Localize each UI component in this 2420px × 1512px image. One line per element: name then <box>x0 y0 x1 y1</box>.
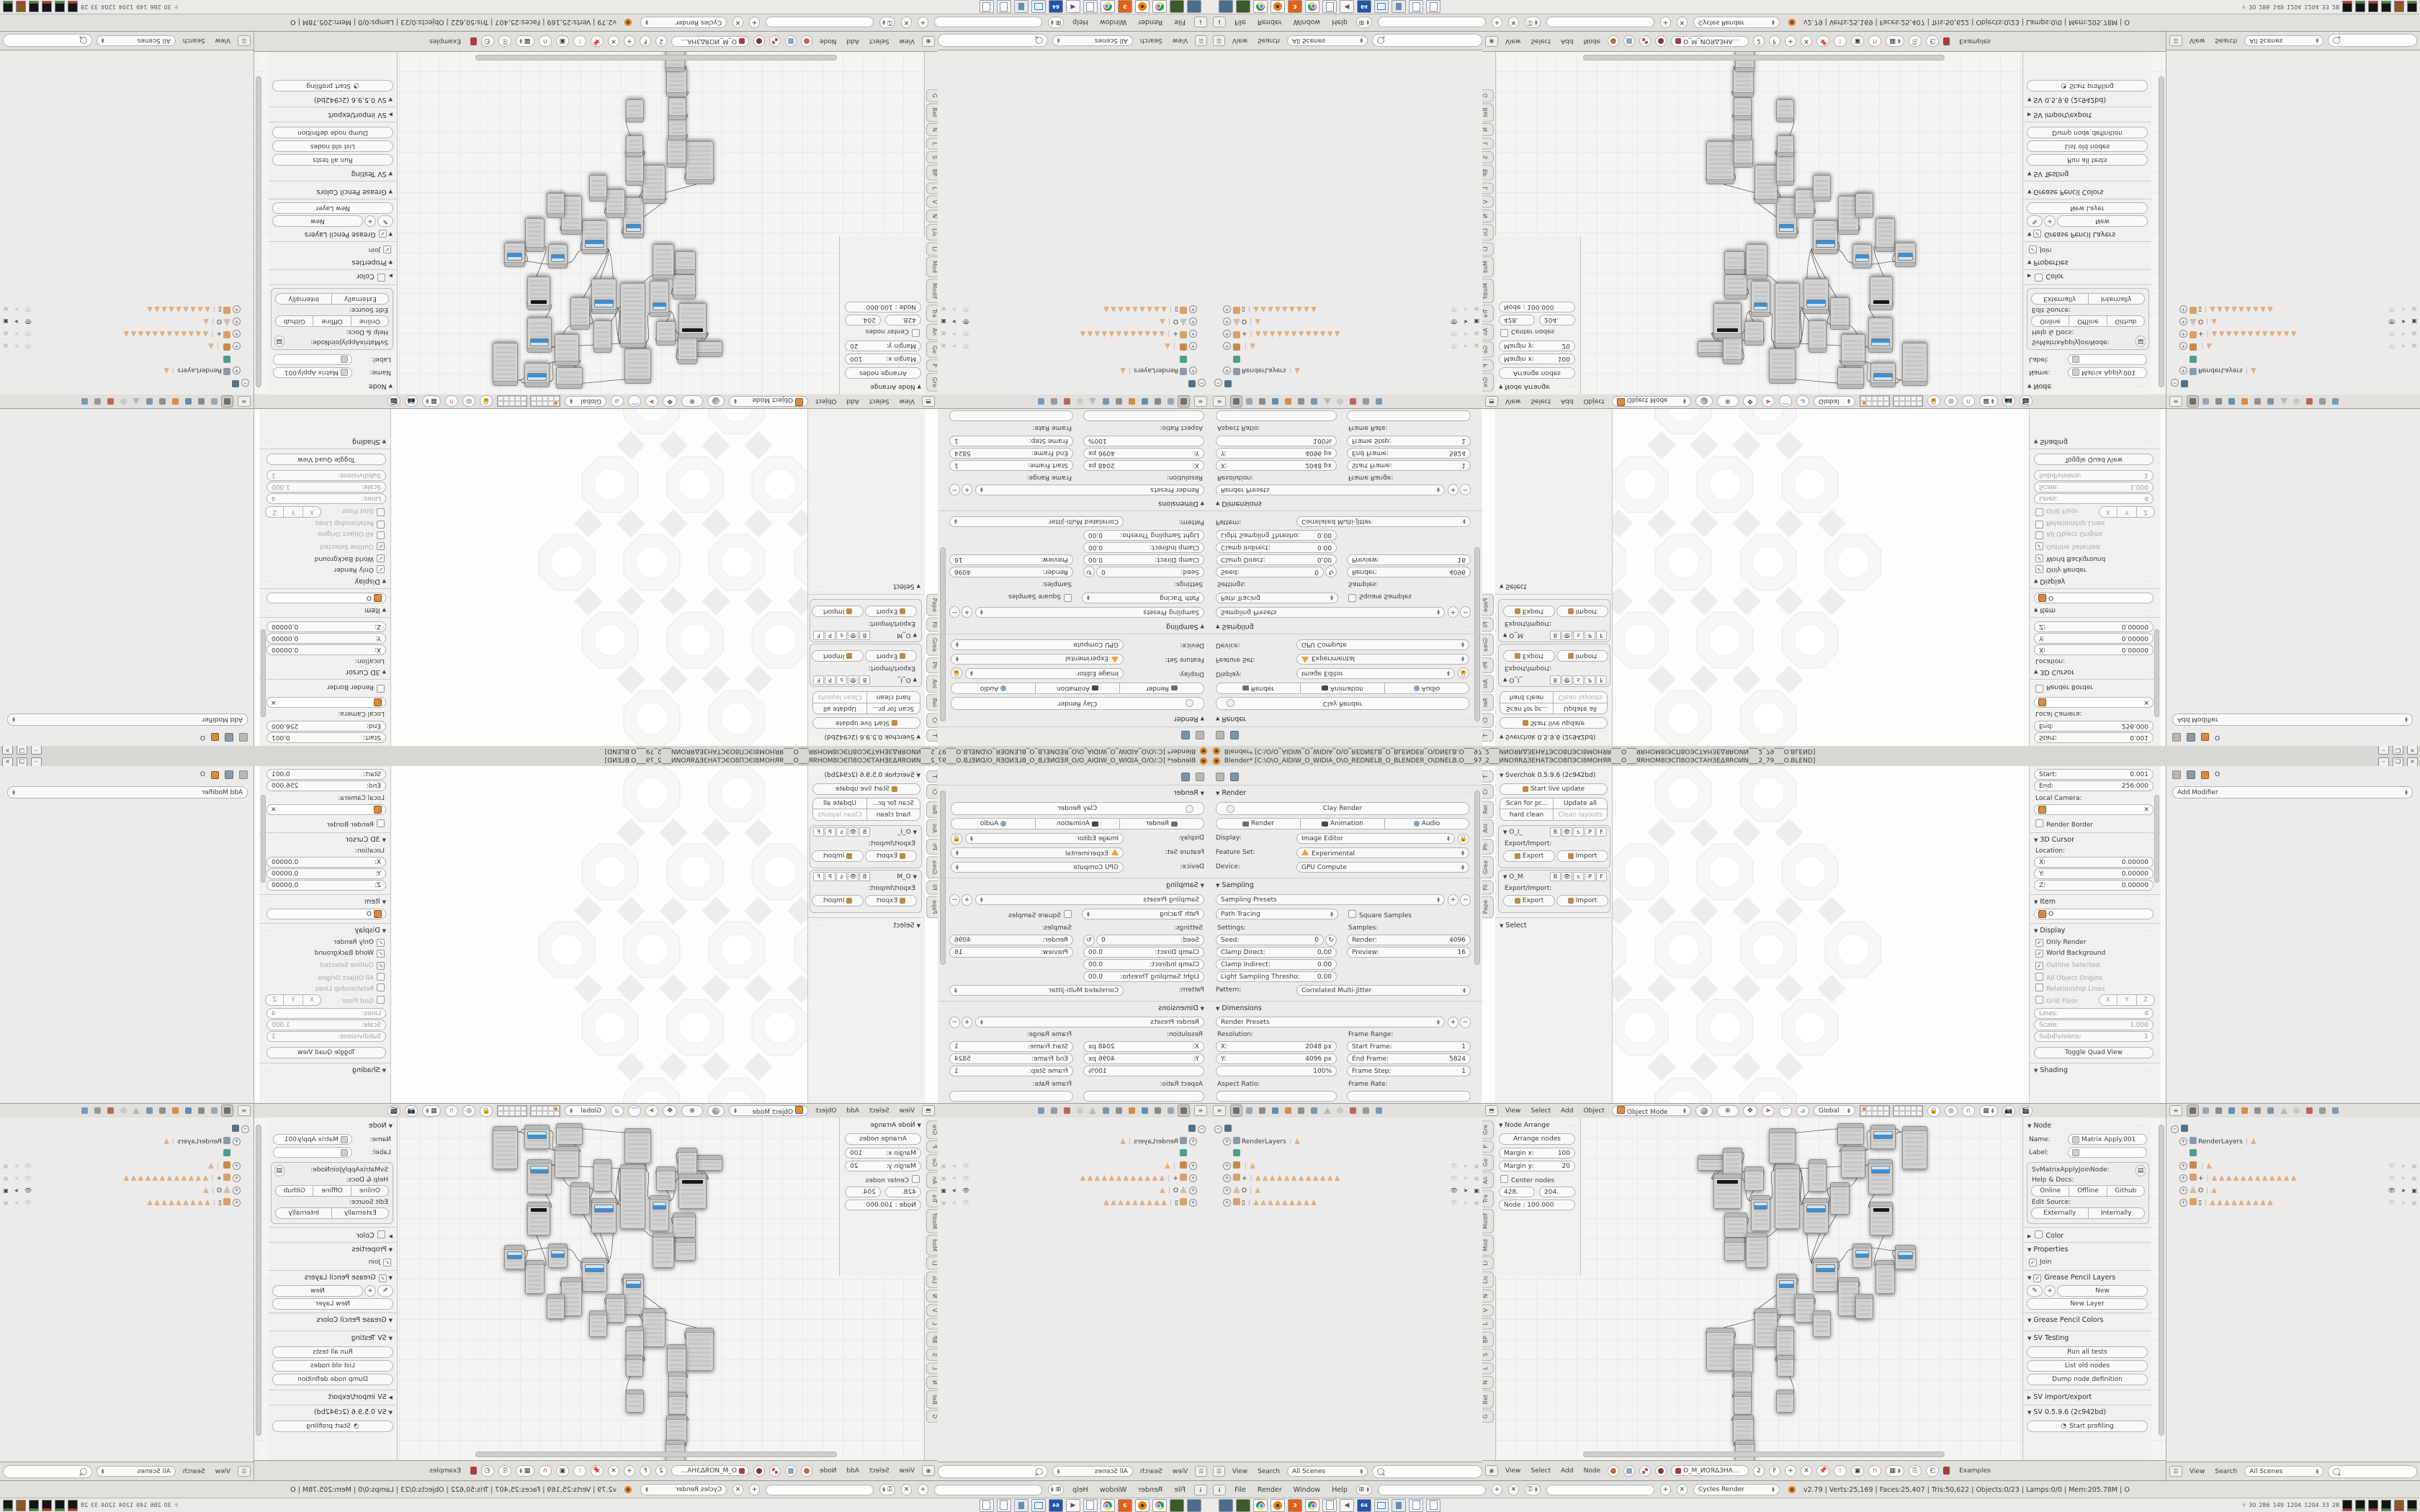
outliner-editor-type-icon[interactable]: ☰ <box>238 1466 251 1477</box>
selectable-cursor-icon[interactable]: ➤ <box>14 1200 19 1206</box>
sverchok-node[interactable] <box>1698 1155 1724 1171</box>
import-button[interactable]: Import <box>1556 895 1608 906</box>
gp-colors-panel-header[interactable]: ▼Grease Pencil Colors <box>317 1316 393 1324</box>
menu-view[interactable]: View <box>212 37 233 45</box>
menu-render[interactable]: Render <box>1255 19 1285 27</box>
taskbar-notepad-3-icon[interactable] <box>980 1 994 14</box>
compositing-nodes-toggle-icon[interactable] <box>785 1465 797 1477</box>
renderable-camera-icon[interactable]: ▣ <box>3 306 9 312</box>
taskbar-notepad-3-icon[interactable] <box>1426 1 1440 14</box>
menu-file[interactable]: File <box>1232 1486 1249 1494</box>
square-samples-checkbox[interactable]: Square Samples <box>1348 910 1412 919</box>
paste-nodes-icon[interactable]: ⎗ <box>1926 1465 1939 1477</box>
clip-start-field[interactable]: Start:0.001 <box>266 732 386 743</box>
sverchok-node[interactable] <box>1902 1126 1927 1169</box>
sverchok-node[interactable] <box>493 1126 518 1169</box>
outliner-search-input[interactable] <box>938 35 1048 48</box>
tool-tab-an[interactable]: An <box>1482 323 1494 340</box>
layer-cell[interactable] <box>531 402 537 407</box>
join-checkbox[interactable]: ✓Join <box>2029 1259 2051 1266</box>
layout-add-button[interactable]: + <box>1492 1484 1502 1495</box>
layer-cell[interactable] <box>1883 402 1889 407</box>
snap-element-dropdown[interactable]: ▦▲▼ <box>422 396 441 408</box>
sverchok-node[interactable] <box>1809 1159 1827 1192</box>
sverchok-node[interactable] <box>696 341 722 357</box>
renderable-camera-icon[interactable]: ▣ <box>941 1163 946 1169</box>
sverchok-node[interactable] <box>653 244 674 279</box>
system-monitor-block[interactable] <box>2394 1 2404 13</box>
dim-preset-remove-button[interactable]: − <box>1460 1017 1471 1028</box>
online-button[interactable]: Online <box>2031 315 2069 327</box>
clip-start-field[interactable]: Start:0.001 <box>2034 732 2154 743</box>
gp-new-button[interactable]: New <box>2057 215 2148 227</box>
taskbar-blender-icon[interactable] <box>1135 1499 1149 1512</box>
dim-preset-add-button[interactable]: + <box>962 1017 972 1028</box>
outliner-row[interactable]: +▯|👁➤▣ <box>939 1198 1207 1210</box>
sverchok-node[interactable] <box>1769 1128 1796 1164</box>
property-tab-scene-icon[interactable] <box>195 1104 207 1117</box>
scan-for-props-button[interactable]: Scan for pr... <box>866 798 920 809</box>
tool-tab-bp[interactable]: BP <box>1482 165 1494 181</box>
item-panel-header[interactable]: ▼Item <box>364 898 386 906</box>
scale-field[interactable]: Scale:1.000 <box>2034 482 2154 492</box>
menu-search[interactable]: Search <box>180 37 208 45</box>
layer-cell[interactable] <box>503 1106 509 1111</box>
selectable-cursor-icon[interactable]: ➤ <box>1464 1163 1469 1169</box>
minimize-button[interactable]: – <box>31 745 42 755</box>
layer-cell[interactable] <box>1905 1106 1911 1111</box>
sv-testing-panel-header[interactable]: ▼SV Testing <box>351 1334 393 1342</box>
layer-cell[interactable] <box>531 1111 537 1116</box>
taskbar-notepad-icon[interactable] <box>1083 1 1098 14</box>
unlink-tree-button[interactable]: ✕ <box>1801 36 1812 48</box>
update-all-button[interactable]: Update all <box>1554 703 1608 714</box>
render-samples-field[interactable]: Render:4096 <box>1347 567 1471 577</box>
renderable-camera-icon[interactable]: ▣ <box>2411 1175 2417 1182</box>
info-editor-type-icon[interactable]: ℹ <box>1213 17 1226 28</box>
properties-editor-type-icon[interactable]: ≡ <box>238 1105 251 1116</box>
cursor-panel-header[interactable]: ▼3D Cursor <box>2034 668 2074 676</box>
node-panel-header[interactable]: ▼Node <box>2027 1122 2051 1130</box>
renderable-camera-icon[interactable]: ▣ <box>941 306 946 312</box>
node-arrange-header[interactable]: ▼Node Arrange <box>1499 1122 1550 1129</box>
sverchok-node[interactable] <box>589 175 607 202</box>
tree-name[interactable]: O_M <box>1509 873 1523 881</box>
taskbar-notepad-icon[interactable] <box>1322 1499 1337 1512</box>
scene-field[interactable] <box>1546 17 1654 28</box>
render-border-checkbox[interactable]: Render Border <box>327 819 385 829</box>
res-y-field[interactable]: Y:4096 px <box>1083 1053 1204 1064</box>
menu-view[interactable]: View <box>897 38 918 45</box>
layer-cell[interactable] <box>1872 397 1878 402</box>
gp-add-icon[interactable]: + <box>364 215 376 227</box>
layer-cell[interactable] <box>498 1106 503 1111</box>
property-tab-modifiers-icon[interactable] <box>1308 1104 1320 1117</box>
visibility-eye-icon[interactable]: 👁 <box>2388 343 2396 349</box>
screen-layout-icon[interactable]: ⊞▲▼ <box>1048 17 1064 28</box>
viewport-3d[interactable]: TCrRelAniPhGreaFilPape ▼Sverchok 0.5.9.6… <box>254 395 938 746</box>
info-editor-type-icon[interactable]: ℹ <box>1213 1485 1226 1495</box>
tool-tab-p[interactable]: P <box>1482 1140 1494 1153</box>
res-y-field[interactable]: Y:4096 px <box>1083 448 1204 459</box>
taskbar-calculator-icon[interactable] <box>1014 1499 1028 1512</box>
grid-floor-checkbox[interactable]: Grid Floor <box>342 507 385 516</box>
expand-icon[interactable]: + <box>1189 305 1197 313</box>
layer-cell[interactable] <box>554 397 560 402</box>
tool-tab-bp[interactable]: BP <box>1482 1331 1494 1347</box>
layer-cell[interactable] <box>1911 1106 1917 1111</box>
tool-tab-g[interactable]: G <box>926 89 938 102</box>
outliner-row[interactable]: +RenderLayers| <box>1 364 251 375</box>
tool-tab-tra[interactable]: Tra <box>1482 305 1494 322</box>
aspect-x-field[interactable] <box>1083 1091 1204 1102</box>
display-panel-header[interactable]: ▼Display <box>2034 927 2065 935</box>
tree-toggle-👁[interactable]: 👁 <box>848 827 859 837</box>
viewport-editor-type-icon[interactable]: ⬒ <box>922 396 935 407</box>
node-arrange-header[interactable]: ▼Node Arrange <box>1499 383 1550 390</box>
start-profiling-button[interactable]: ◔Start profiling <box>272 1421 393 1432</box>
node-label-field[interactable] <box>273 354 352 365</box>
update-all-button[interactable]: Update all <box>812 798 866 809</box>
sverchok-node[interactable] <box>620 1164 645 1229</box>
snap-magnet-icon[interactable]: ∩ <box>1962 1105 1975 1117</box>
sverchok-node[interactable] <box>1735 49 1754 72</box>
expand-icon[interactable]: + <box>1189 330 1197 338</box>
menu-help[interactable]: Help <box>1070 19 1091 27</box>
outliner-item-label[interactable]: O <box>1242 1187 1247 1194</box>
new-tree-button[interactable]: + <box>1785 36 1796 48</box>
outliner-row[interactable] <box>1213 351 1481 363</box>
outliner-row[interactable]: +▯|👁➤▣ <box>1 302 251 314</box>
pattern-dropdown[interactable]: Correlated Multi-Jitter▲▼ <box>1296 516 1471 527</box>
property-tab-scene-icon[interactable] <box>1152 1104 1164 1117</box>
selectable-cursor-icon[interactable]: ➤ <box>14 1163 19 1169</box>
outliner-row[interactable] <box>939 351 1207 363</box>
tool-tab-ani[interactable]: Ani <box>1482 675 1494 693</box>
outliner-row[interactable]: − <box>2169 376 2419 387</box>
menu-help[interactable]: Help <box>1329 1486 1350 1494</box>
layer-cell[interactable] <box>1911 1111 1917 1116</box>
subdivisions-field[interactable]: Subdivisions:1 <box>2034 1031 2154 1042</box>
shader-nodes-toggle-icon[interactable] <box>801 1465 812 1477</box>
outliner-editor-type-icon[interactable]: ☰ <box>1213 35 1225 46</box>
sv-testing-panel-header[interactable]: ▼SV Testing <box>2027 170 2069 178</box>
outliner-item-label[interactable]: ▯ <box>1242 305 1245 312</box>
sverchok-node[interactable] <box>675 251 696 274</box>
tool-tab-ph[interactable]: Ph <box>926 839 938 855</box>
visibility-eye-icon[interactable]: 👁 <box>962 1200 969 1206</box>
taskbar-calculator-icon[interactable] <box>1014 1 1028 14</box>
sverchok-node[interactable] <box>624 1128 651 1164</box>
system-monitor-block[interactable] <box>68 1500 78 1511</box>
outliner-row[interactable]: +RenderLayers| <box>939 364 1207 375</box>
tool-tab-cr[interactable]: Cr <box>1482 784 1494 799</box>
mode-dropdown[interactable]: Object Mode▲▼ <box>729 1105 808 1116</box>
sverchok-node[interactable] <box>555 334 579 366</box>
expand-icon[interactable]: + <box>233 330 241 338</box>
property-tab-constraints-icon[interactable] <box>1295 395 1307 408</box>
node-tree-selector[interactable]: O_M_ИОЯΔЗНА... <box>671 1465 749 1476</box>
all-object-origins-checkbox[interactable]: All Object Origins <box>2035 530 2102 539</box>
seed-field[interactable]: Seed:0 <box>1096 567 1204 577</box>
tree-name[interactable]: O_I_ <box>897 676 911 683</box>
sverchok-node[interactable] <box>1776 197 1797 238</box>
world-background-checkbox[interactable]: ✓World Background <box>2035 554 2105 562</box>
sverchok-node[interactable] <box>606 189 625 218</box>
render-samples-field[interactable]: Render:4096 <box>949 935 1073 945</box>
relationship-lines-checkbox[interactable]: Relationship Lines <box>2035 984 2105 993</box>
shading-dropdown[interactable] <box>1695 1105 1713 1117</box>
property-tab-object-data-icon[interactable] <box>130 395 143 408</box>
seed-field[interactable]: Seed:0 <box>1096 935 1204 945</box>
parent-tree-icon[interactable]: ⇧ <box>573 1465 586 1477</box>
expand-icon[interactable]: + <box>1223 342 1231 350</box>
property-tab-modifiers-icon[interactable] <box>2264 1104 2277 1117</box>
renderable-camera-icon[interactable]: ▣ <box>941 1175 946 1182</box>
menu-add[interactable]: Add <box>1558 38 1576 45</box>
gp-new-button[interactable]: New <box>2057 1285 2148 1297</box>
taskbar-openshot-icon[interactable]: ↄ <box>1118 1499 1132 1512</box>
expand-icon[interactable]: + <box>1223 366 1231 374</box>
gp-pencil-icon[interactable]: ✎ <box>377 1285 393 1297</box>
menu-select[interactable]: Select <box>866 398 892 405</box>
tool-tab-pape[interactable]: Pape <box>926 896 938 918</box>
display-lock-icon[interactable]: 🔒 <box>1458 667 1469 679</box>
dump-node-definition-button[interactable]: Dump node definition <box>2027 127 2148 138</box>
tool-tab-bet[interactable]: Bet <box>926 104 938 122</box>
tool-tab-fil[interactable]: Fil <box>926 880 938 894</box>
start-profiling-button[interactable]: ◔Start profiling <box>2027 1421 2148 1432</box>
tool-tab-n[interactable]: N <box>926 123 938 136</box>
properties-scrollbar[interactable] <box>1474 547 1480 721</box>
tool-tab-n[interactable]: N <box>1482 1376 1494 1389</box>
panel-dimensions[interactable]: ▼Dimensions <box>1158 500 1204 508</box>
tree-toggle-s[interactable]: s <box>1573 827 1584 837</box>
offline-button[interactable]: Offline <box>2069 315 2106 327</box>
menu-add[interactable]: Add <box>843 1107 861 1115</box>
tool-tab-li[interactable]: Li <box>1482 1256 1494 1270</box>
outliner-row[interactable] <box>2169 351 2419 363</box>
selectable-cursor-icon[interactable]: ➤ <box>14 1187 19 1194</box>
property-tab-texture-icon[interactable] <box>104 395 117 408</box>
tool-tab-ge[interactable]: Ge <box>1482 1154 1494 1171</box>
lock-camera-icon[interactable]: 🔒 <box>1927 1105 1940 1117</box>
layout-add-button[interactable]: + <box>918 17 928 28</box>
taskbar-chrome-2-icon[interactable] <box>1305 1 1319 14</box>
cursor-z-field[interactable]: Z:0.00000 <box>266 880 386 891</box>
npanel-scrollbar[interactable] <box>2154 795 2159 883</box>
tree-toggle-p[interactable]: P <box>825 631 835 640</box>
menu-view[interactable]: View <box>897 1467 918 1475</box>
layer-cell[interactable] <box>1878 1111 1883 1116</box>
sverchok-node[interactable] <box>524 363 550 387</box>
visibility-eye-icon[interactable]: 👁 <box>1451 1175 1458 1182</box>
externally-button[interactable]: Externally <box>332 1207 390 1219</box>
cursor-z-field[interactable]: Z:0.00000 <box>2034 621 2154 632</box>
axis-z-toggle[interactable]: Z <box>265 994 284 1006</box>
property-tab-object-data-icon[interactable] <box>1087 395 1099 408</box>
layer-cell[interactable] <box>503 1111 509 1116</box>
parent-tree-icon[interactable]: ⇧ <box>573 36 586 48</box>
proportional-edit-icon[interactable]: ◎ <box>462 1105 475 1117</box>
outliner-item-label[interactable]: + <box>216 1175 222 1182</box>
menu-object[interactable]: Object <box>812 398 839 405</box>
layers-widget[interactable] <box>1860 396 1923 408</box>
preset-remove-button[interactable]: − <box>1460 606 1471 618</box>
sverchok-node[interactable] <box>1698 341 1724 357</box>
layer-cell[interactable] <box>1866 402 1872 407</box>
sverchok-node[interactable] <box>527 1202 550 1236</box>
scan-for-props-button[interactable]: Scan for pr... <box>1500 798 1554 809</box>
property-tab-render-layers-icon[interactable] <box>208 1104 220 1117</box>
sverchok-nodes-toggle-icon[interactable] <box>753 1465 765 1477</box>
tree-users-button[interactable]: 2 <box>655 1465 667 1477</box>
clip-end-field[interactable]: End:256.000 <box>266 721 386 732</box>
outliner-row[interactable] <box>1213 1149 1481 1161</box>
expand-icon[interactable]: + <box>1223 330 1231 338</box>
taskbar-display-settings-icon[interactable] <box>1219 1499 1233 1512</box>
property-tab-world-icon[interactable] <box>182 1104 194 1117</box>
visibility-eye-icon[interactable]: 👁 <box>962 1187 969 1194</box>
node-panel-header[interactable]: ▼Node <box>2027 382 2051 390</box>
world-background-checkbox[interactable]: ✓World Background <box>315 554 385 562</box>
title-bar[interactable]: Blender* [C:\O\O_AIDIW_O_WIDIA_O\O_REDNE… <box>1210 745 2420 756</box>
axis-z-toggle[interactable]: Z <box>2136 994 2155 1006</box>
menu-file[interactable]: File <box>1232 19 1249 27</box>
clay-render-button[interactable]: Clay Render <box>951 802 1204 815</box>
export-button[interactable]: Export <box>1503 606 1555 617</box>
viewport-3d[interactable]: TCrRelAniPhGreaFilPape ▼Sverchok 0.5.9.6… <box>1482 395 2166 746</box>
sverchok-node[interactable] <box>675 1238 696 1261</box>
node-scale-field[interactable]: Node : 100.000 <box>1499 1200 1575 1210</box>
paste-nodes-icon[interactable]: ⎗ <box>481 36 494 48</box>
tree-toggle-p[interactable]: P <box>825 827 835 837</box>
arrange-field-2[interactable]: 204. <box>1539 1187 1575 1197</box>
shading-panel-header[interactable]: ▼Shading <box>352 438 386 446</box>
margin-x-field[interactable]: Margin x:100 <box>1499 1148 1575 1158</box>
outliner-item-label[interactable]: RenderLayers <box>1134 366 1178 374</box>
node-scale-field[interactable]: Node : 100.000 <box>845 302 921 312</box>
tree-name[interactable]: O_M <box>897 873 910 881</box>
outliner-row[interactable]: +|👁➤▣ <box>1213 339 1481 351</box>
render-engine-dropdown[interactable]: Cycles Render▲▼ <box>640 17 727 28</box>
property-tab-render-icon[interactable] <box>221 1104 233 1117</box>
scan-for-props-button[interactable]: Scan for pr... <box>866 703 920 714</box>
scene-field[interactable] <box>1546 1485 1654 1495</box>
scene-field[interactable] <box>766 17 874 28</box>
cursor-z-field[interactable]: Z:0.00000 <box>266 621 386 632</box>
snap-magnet-icon[interactable]: ∩ <box>539 36 552 48</box>
info-editor-type-icon[interactable]: ℹ <box>1194 1485 1207 1495</box>
node-editor-type-icon[interactable]: ◉ <box>1485 36 1498 47</box>
renderable-camera-icon[interactable]: ▣ <box>1474 306 1479 312</box>
new-tree-button[interactable]: + <box>624 1465 635 1477</box>
system-monitor-block[interactable] <box>68 1 78 13</box>
margin-x-field[interactable]: Margin x:100 <box>845 354 921 364</box>
outliner-row[interactable]: +|👁➤▣ <box>2169 1161 2419 1173</box>
visibility-eye-icon[interactable]: 👁 <box>962 343 969 349</box>
sverchok-node[interactable] <box>527 318 552 353</box>
sverchok-node[interactable] <box>1724 274 1747 300</box>
start-frame-field[interactable]: Start Frame:1 <box>949 1041 1073 1052</box>
sverchok-node[interactable] <box>548 1243 568 1268</box>
animation-button[interactable]: Animation <box>1036 818 1119 829</box>
sampling-presets-dropdown[interactable]: Sampling Presets▲▼ <box>975 894 1204 905</box>
toggle-quad-view-button[interactable]: Toggle Quad View <box>2034 1047 2154 1058</box>
expand-icon[interactable]: + <box>1189 1138 1197 1146</box>
property-tab-render-layers-icon[interactable] <box>2200 1104 2212 1117</box>
node-vscrollbar[interactable] <box>2159 76 2164 387</box>
outliner-item-label[interactable]: ▯ <box>2198 305 2202 312</box>
preview-samples-field[interactable]: Preview:16 <box>1347 947 1471 958</box>
feature-set-dropdown[interactable]: Experimental▲▼ <box>1296 847 1469 858</box>
layer-cell[interactable] <box>1905 402 1911 407</box>
tool-tab-rel[interactable]: Rel <box>926 694 938 711</box>
node-panel-header[interactable]: ▼Node <box>369 1122 393 1130</box>
layer-cell[interactable] <box>503 402 509 407</box>
outline-selected-checkbox[interactable]: ✓Outline Selected <box>321 962 385 970</box>
tool-tab-rel[interactable]: Rel <box>1482 694 1494 711</box>
tool-tab-s[interactable]: S <box>1482 151 1494 163</box>
tool-tab-modif[interactable]: Modif <box>1482 279 1494 303</box>
layer-cell[interactable] <box>1883 1111 1889 1116</box>
render-samples-field[interactable]: Render:4096 <box>1347 935 1471 945</box>
layer-cell[interactable] <box>498 402 503 407</box>
tree-toggle-👁[interactable]: 👁 <box>1561 631 1572 640</box>
sverchok-node[interactable] <box>1809 320 1827 353</box>
clip-end-field[interactable]: End:256.000 <box>2034 721 2154 732</box>
taskbar-chrome-2-icon[interactable] <box>1101 1 1115 14</box>
tool-tab-lis[interactable]: Lis <box>1482 1272 1494 1288</box>
selectable-cursor-icon[interactable]: ➤ <box>14 1175 19 1182</box>
sverchok-node[interactable] <box>696 1155 722 1171</box>
sv-version-panel-header[interactable]: ▼SV 0.5.9.6 (2c942bd) <box>2027 96 2106 104</box>
property-tab-particles-icon[interactable] <box>91 395 104 408</box>
snap-magnet-icon[interactable]: ∩ <box>539 1465 552 1477</box>
sverchok-node[interactable] <box>1813 1258 1838 1292</box>
clay-render-button[interactable]: Clay Render <box>1216 802 1469 815</box>
sverchok-node[interactable] <box>1751 1195 1770 1231</box>
sverchok-node[interactable] <box>686 1328 714 1371</box>
selectable-cursor-icon[interactable]: ➤ <box>952 1175 957 1182</box>
hard-clean-button[interactable]: hard clean <box>1500 691 1554 703</box>
selectable-cursor-icon[interactable]: ➤ <box>2401 306 2406 312</box>
arrange-field-2[interactable]: 204. <box>845 1187 881 1197</box>
scene-delete-button[interactable]: ✕ <box>1677 17 1688 28</box>
tool-tab-an[interactable]: An <box>926 323 938 340</box>
sverchok-node[interactable] <box>1813 175 1831 202</box>
property-tab-render-icon[interactable] <box>1178 395 1190 408</box>
menu-add[interactable]: Add <box>843 1467 861 1475</box>
cursor-x-field[interactable]: X:0.00000 <box>266 644 386 655</box>
join-checkbox[interactable]: ✓Join <box>369 246 391 253</box>
tree-toggle-f[interactable]: F <box>813 631 824 640</box>
property-tab-scene-icon[interactable] <box>1256 395 1268 408</box>
lock-camera-icon[interactable]: 🔒 <box>480 396 493 408</box>
clay-render-button[interactable]: Clay Render <box>1216 697 1469 710</box>
expand-icon[interactable]: + <box>1223 318 1231 325</box>
property-tab-modifiers-icon[interactable] <box>143 395 156 408</box>
scene-delete-button[interactable]: ✕ <box>732 1484 743 1495</box>
layer-cell[interactable] <box>509 397 515 402</box>
copy-nodes-icon[interactable]: ⎘ <box>498 1465 511 1477</box>
property-tab-world-icon[interactable] <box>1139 1104 1151 1117</box>
menu-select[interactable]: Select <box>866 1467 892 1475</box>
layer-cell[interactable] <box>1883 1106 1889 1111</box>
node-scale-field[interactable]: Node : 100.000 <box>845 1200 921 1210</box>
integrator-dropdown[interactable]: Path Tracing▲▼ <box>1216 909 1338 919</box>
animation-button[interactable]: Animation <box>1036 683 1119 694</box>
